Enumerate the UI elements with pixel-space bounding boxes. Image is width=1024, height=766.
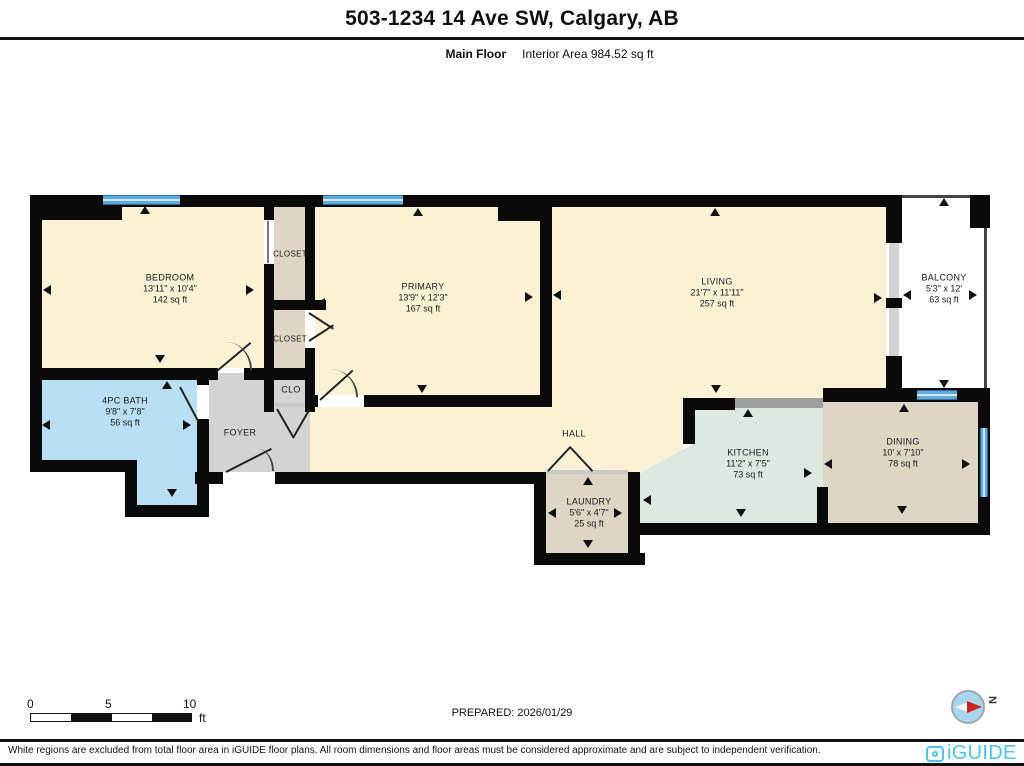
dimension-arrow-right-icon: [183, 420, 191, 430]
wall: [197, 368, 209, 385]
iguide-logo: iGUIDE: [926, 742, 1017, 765]
footer-divider: [0, 739, 1024, 742]
dimension-arrow-left-icon: [553, 290, 561, 300]
dining-side-window: [980, 428, 988, 497]
bedroom-window: [103, 195, 180, 205]
balcony-glass-door: [889, 243, 899, 298]
dimension-arrow-down-icon: [736, 509, 746, 517]
wall: [534, 553, 645, 565]
dimension-arrow-up-icon: [413, 208, 423, 216]
prepared-date: PREPARED: 2026/01/29: [0, 707, 1024, 719]
wall: [498, 195, 542, 221]
dimension-arrow-up-icon: [140, 206, 150, 214]
wall: [817, 487, 828, 527]
interior-area-label: Interior Area 984.52 sq ft: [522, 47, 653, 61]
dimension-arrow-down-icon: [155, 355, 165, 363]
wall: [886, 195, 902, 243]
wall: [30, 195, 42, 472]
dimension-arrow-up-icon: [583, 477, 593, 485]
room-label-clo: CLO: [281, 385, 300, 396]
disclaimer-text: White regions are excluded from total fl…: [8, 745, 821, 756]
wall: [628, 523, 990, 535]
room-label-dining: DINING 10' x 7'10" 78 sq ft: [882, 437, 923, 470]
dimension-arrow-right-icon: [969, 290, 977, 300]
page-title: 503-1234 14 Ave SW, Calgary, AB: [0, 7, 1024, 31]
dimension-arrow-down-icon: [583, 540, 593, 548]
compass-north-label: N: [986, 696, 998, 704]
wall: [683, 398, 695, 444]
dining-top-window: [917, 390, 957, 400]
dimension-arrow-down-icon: [417, 385, 427, 393]
wall: [534, 472, 546, 565]
room-label-closet-mid: CLOSET: [273, 334, 307, 345]
dimension-arrow-down-icon: [939, 380, 949, 388]
living-floor: [552, 207, 886, 412]
dimension-arrow-left-icon: [824, 459, 832, 469]
floor-plan-page: 503-1234 14 Ave SW, Calgary, AB Main Flo…: [0, 0, 1024, 766]
kitchen-counter: [733, 398, 823, 408]
room-label-bedroom: BEDROOM 13'11" x 10'4" 142 sq ft: [143, 273, 197, 306]
dimension-arrow-right-icon: [804, 468, 812, 478]
wall: [125, 505, 209, 517]
wall: [823, 388, 990, 402]
dimension-arrow-down-icon: [167, 489, 177, 497]
room-label-primary: PRIMARY 13'9" x 12'3" 167 sq ft: [398, 282, 447, 315]
clo-threshold: [273, 403, 306, 407]
room-label-laundry: LAUNDRY 5'6" x 4'7" 25 sq ft: [567, 497, 612, 530]
dimension-arrow-up-icon: [939, 198, 949, 206]
bath-floor-notch: [137, 460, 197, 507]
dimension-arrow-left-icon: [42, 420, 50, 430]
header-divider: [0, 37, 1024, 40]
dimension-arrow-right-icon: [874, 293, 882, 303]
dimension-arrow-up-icon: [710, 208, 720, 216]
room-label-foyer: FOYER: [224, 428, 257, 439]
wall: [886, 298, 902, 308]
dimension-arrow-up-icon: [899, 404, 909, 412]
wall: [30, 368, 210, 380]
compass-needle: [967, 701, 982, 713]
wall: [540, 195, 552, 407]
dimension-arrow-right-icon: [246, 285, 254, 295]
dimension-arrow-down-icon: [711, 385, 721, 393]
dimension-arrow-left-icon: [643, 495, 651, 505]
dimension-arrow-down-icon: [897, 506, 907, 514]
dimension-arrow-right-icon: [525, 292, 533, 302]
dimension-arrow-up-icon: [743, 409, 753, 417]
entry-door-opening: [223, 472, 275, 484]
wall: [197, 419, 209, 517]
wall: [30, 460, 137, 472]
dimension-arrow-left-icon: [43, 285, 51, 295]
wall: [305, 348, 315, 368]
dimension-arrow-up-icon: [162, 381, 172, 389]
iguide-logo-icon: [926, 746, 944, 762]
room-label-kitchen: KITCHEN 11'2" x 7'5" 73 sq ft: [726, 448, 770, 481]
balcony-glass-panel: [889, 308, 899, 356]
room-label-hall: HALL: [562, 429, 586, 440]
room-label-bath: 4PC BATH 9'8" x 7'8" 56 sq ft: [102, 396, 148, 429]
room-label-balcony: BALCONY 5'3" x 12' 63 sq ft: [921, 273, 966, 306]
floor-label: Main Floor: [445, 47, 506, 61]
laundry-threshold: [546, 470, 628, 474]
dimension-arrow-right-icon: [614, 508, 622, 518]
dimension-arrow-left-icon: [903, 290, 911, 300]
dimension-arrow-right-icon: [962, 459, 970, 469]
floor-subtitle: Main FloorInterior Area 984.52 sq ft: [75, 47, 1024, 61]
dimension-arrow-left-icon: [317, 298, 325, 308]
dimension-arrow-left-icon: [548, 508, 556, 518]
wall: [628, 472, 640, 565]
closet-door-slab: [267, 221, 269, 263]
compass-icon: [951, 690, 985, 724]
wall: [264, 368, 274, 412]
wall: [970, 195, 990, 228]
room-label-living: LIVING 21'7" x 11'11" 257 sq ft: [690, 277, 743, 310]
primary-window: [323, 195, 403, 205]
iguide-logo-text: iGUIDE: [947, 742, 1017, 765]
room-label-closet-top: CLOSET: [273, 249, 307, 260]
